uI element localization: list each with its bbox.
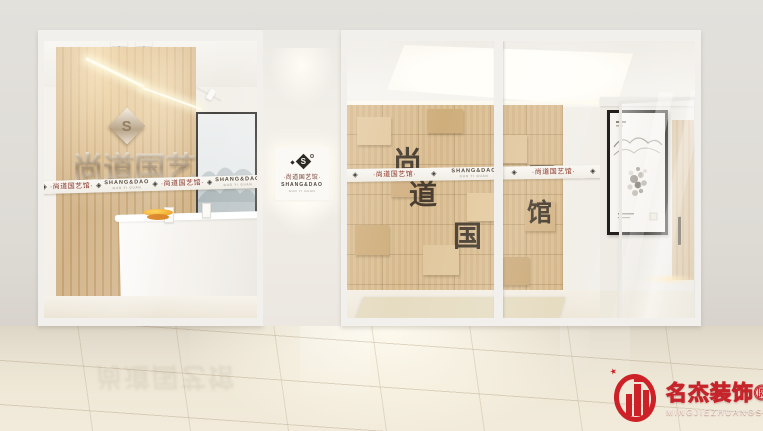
center-pillar: S ·尚道国艺馆· SHANG&DAO GUO YI GUAN [263, 30, 341, 326]
tape-brand-subtext: GUO YI GUAN [113, 186, 142, 190]
tape-brand-block: SHANG&DAO GUO YI GUAN [104, 180, 149, 190]
open-glass-door [619, 97, 695, 318]
logo-dot [290, 160, 294, 164]
left-room-floor [44, 296, 257, 318]
diamond-icon: ◈ [152, 181, 158, 188]
tape-brand-subtext: GUO YI GUAN [224, 183, 253, 187]
desk-display-card [202, 203, 211, 218]
wood-tile [357, 117, 391, 145]
logo-building-bar [626, 394, 632, 416]
diamond-icon: ◈ [207, 179, 213, 186]
decor-bowl-base [147, 214, 169, 220]
diamond-icon: ◈ [511, 169, 516, 176]
wood-tile-feature-wall: 尚 道 国 馆 [347, 105, 563, 291]
watermark-text: 名杰装饰® MINGJIEZHUANGSHI [666, 377, 763, 417]
pendant-light-mount [111, 41, 127, 46]
logo-building-bar [634, 384, 641, 416]
logo-diamond-icon: S [295, 154, 311, 170]
star-icon: ★ [609, 367, 618, 377]
logo-monogram-icon: S [296, 155, 309, 168]
entrance-doorway [600, 41, 695, 318]
logo-building-bar [643, 390, 649, 416]
company-name: 名杰装饰® [666, 377, 763, 407]
area-rug [355, 297, 566, 318]
diamond-icon: ◈ [96, 182, 102, 189]
diamond-icon: ◈ [44, 184, 47, 191]
door-handle [678, 217, 681, 245]
diamond-icon: ◈ [352, 172, 357, 179]
tape-brand-block: SHANG&DAO GUO YI GUAN [215, 177, 257, 187]
window-mullion [494, 41, 503, 318]
wood-tile [355, 225, 389, 255]
sign-chinese-name: ·尚道国艺馆· [283, 172, 321, 181]
company-name-latin: MINGJIEZHUANGSHI [666, 408, 763, 417]
tape-brand-subtext: GUO YI GUAN [460, 175, 489, 178]
diamond-icon: ◈ [431, 171, 436, 178]
right-room: 尚 道 国 馆 ◈ ·尚道国艺馆· ◈ SHANG&DAO GUO YI GUA… [347, 41, 695, 318]
tape-chinese-text: ·尚道国艺馆· [373, 171, 416, 179]
banner-tape: ◈ ·尚道国艺馆· ◈ SHANG&DAO GUO YI GUAN ◈ ·尚道国… [347, 165, 603, 182]
right-display-window: 尚 道 国 馆 ◈ ·尚道国艺馆· ◈ SHANG&DAO GUO YI GUA… [341, 30, 701, 326]
pillar-spotlight-glow [269, 48, 335, 108]
company-watermark: ★ 名杰装饰® MINGJIEZHUANGSHI [610, 366, 760, 428]
pendant-light-mount [136, 41, 152, 46]
left-display-window: S 尚道国艺馆 ◈ ·尚道国艺馆· [38, 30, 263, 326]
tape-chinese-text: ·尚道国艺馆· [532, 168, 575, 176]
led-light-strip [143, 87, 202, 110]
tape-chinese-text: ·尚道国艺馆· [50, 183, 93, 191]
logo-flag [634, 378, 644, 382]
sign-brand-name: SHANG&DAO [281, 182, 323, 188]
tape-chinese-text: ·尚道国艺馆· [161, 180, 204, 188]
wall-character: 道 [409, 181, 437, 209]
led-light-strip [85, 57, 144, 88]
mingjie-logo-icon: ★ [610, 368, 662, 426]
left-room: S 尚道国艺馆 ◈ ·尚道国艺馆· [44, 41, 257, 318]
signage-floor-reflection: 尚道国艺馆 [95, 360, 238, 397]
sign-light-spill [271, 202, 333, 236]
wall-character: 馆 [527, 201, 552, 226]
tape-brand-block: SHANG&DAO GUO YI GUAN [451, 169, 496, 178]
wall-character: 国 [453, 223, 482, 252]
logo-circle [310, 154, 314, 158]
diamond-icon: ◈ [590, 168, 595, 175]
storefront-render: 尚道国艺馆 S 尚道国艺馆 [0, 0, 763, 431]
lightbox-sign: S ·尚道国艺馆· SHANG&DAO GUO YI GUAN [275, 148, 329, 200]
sign-brand-subtext: GUO YI GUAN [289, 189, 316, 193]
wood-tile [427, 109, 463, 133]
